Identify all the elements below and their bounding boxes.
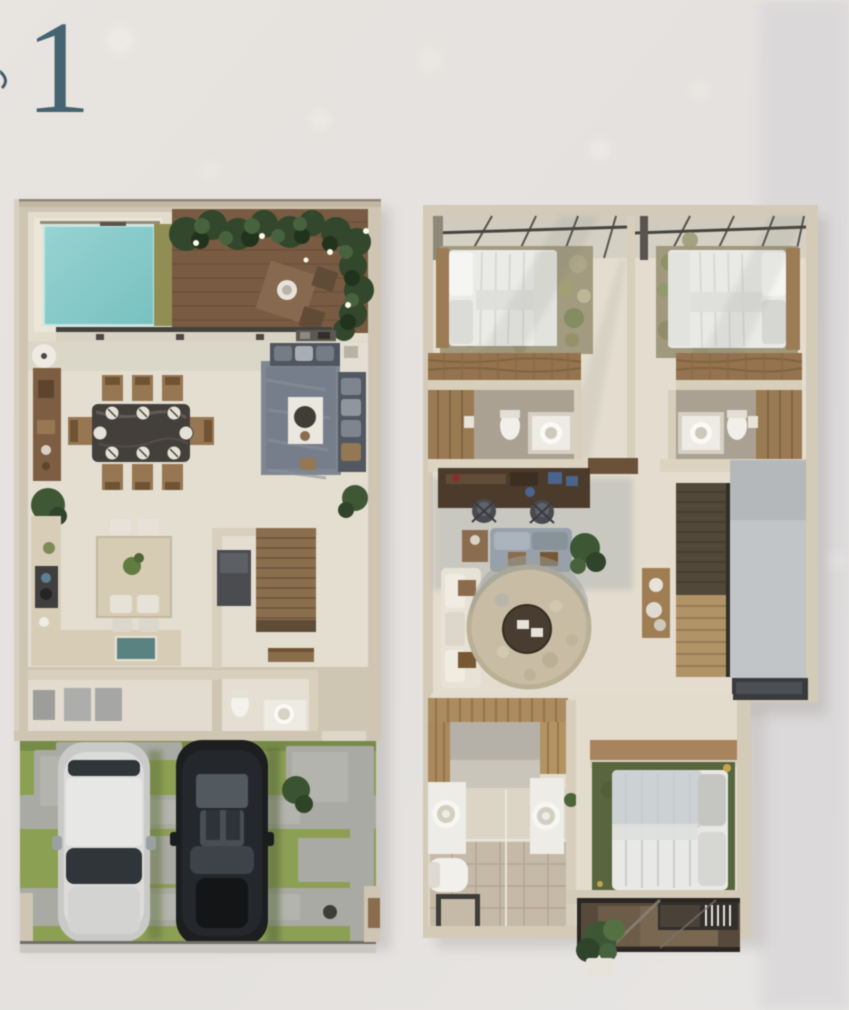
svg-text:1: 1	[25, 0, 92, 141]
